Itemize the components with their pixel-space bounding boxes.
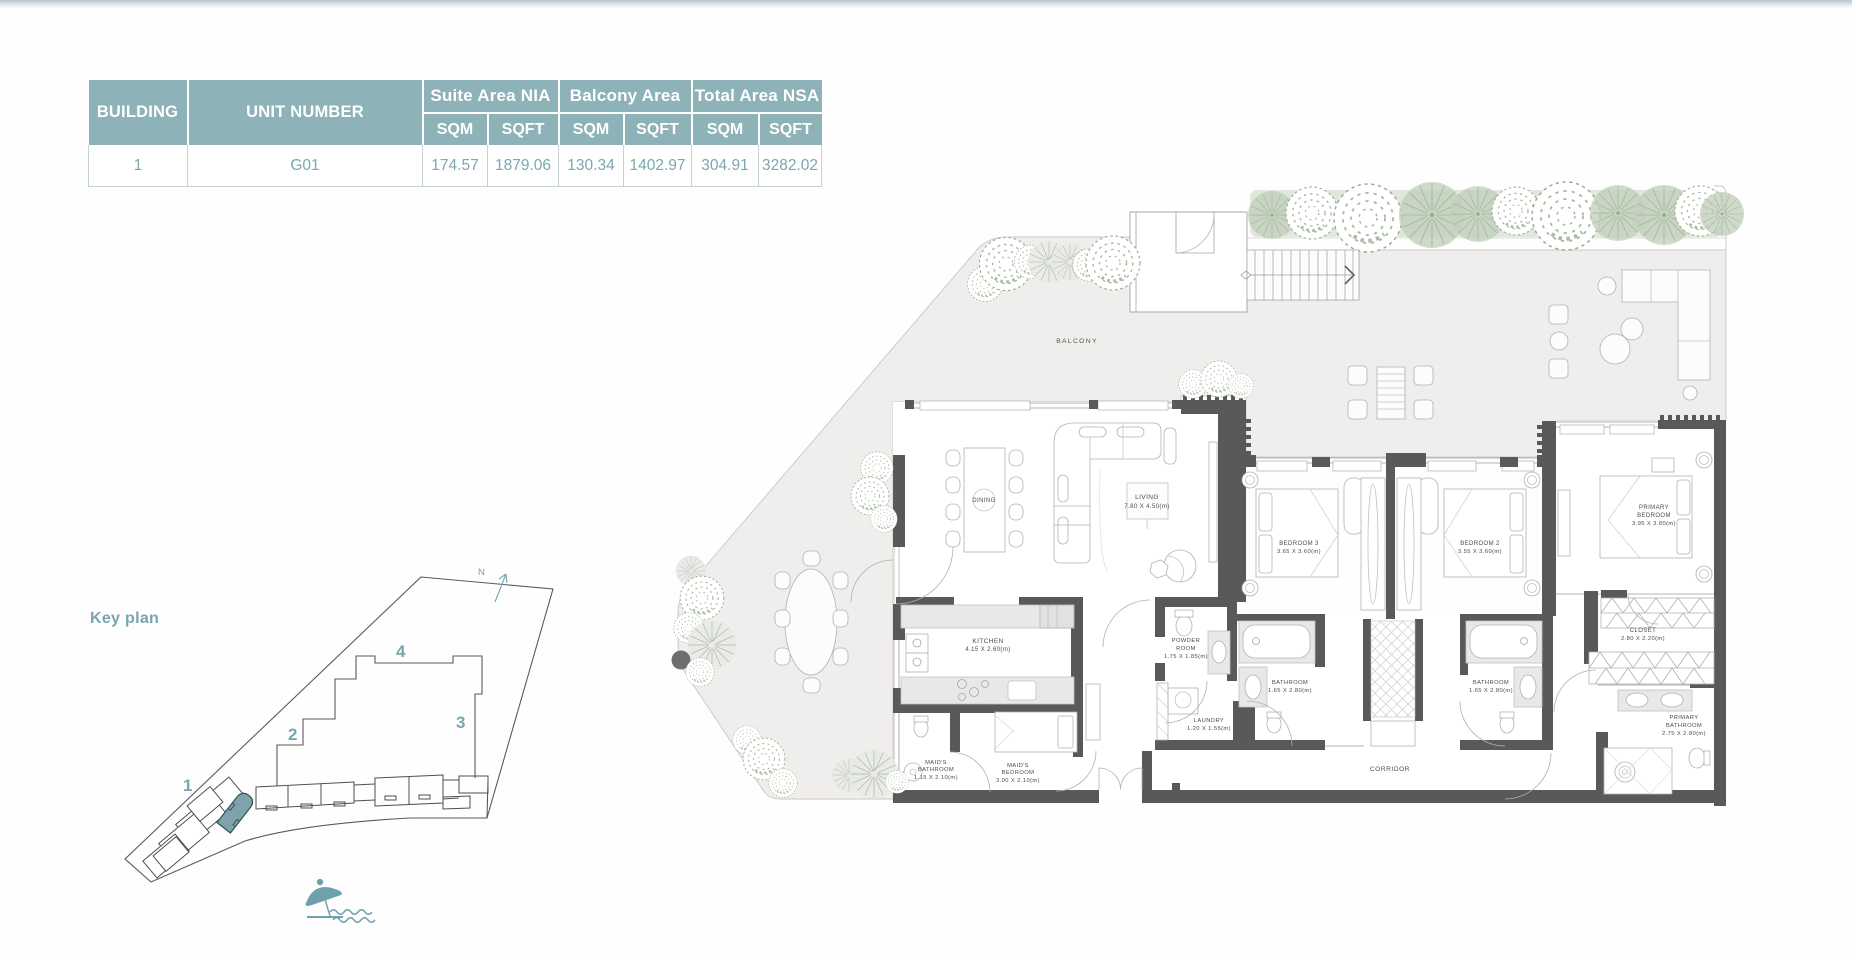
svg-text:LAUNDRY: LAUNDRY	[1194, 718, 1224, 724]
svg-text:3.95 X 3.80(m): 3.95 X 3.80(m)	[1632, 521, 1676, 527]
svg-text:3.55 X 3.60(m): 3.55 X 3.60(m)	[1458, 549, 1502, 555]
svg-text:BEDROOM 2: BEDROOM 2	[1460, 541, 1500, 547]
svg-text:BATHROOM: BATHROOM	[918, 767, 954, 773]
svg-text:N: N	[478, 567, 485, 578]
svg-text:Key plan: Key plan	[90, 610, 159, 627]
svg-text:CLOSET: CLOSET	[1630, 628, 1656, 634]
svg-text:1.75 X 1.85(m): 1.75 X 1.85(m)	[1164, 654, 1208, 660]
svg-text:BATHROOM: BATHROOM	[1473, 680, 1509, 686]
svg-text:DINING: DINING	[972, 498, 995, 504]
svg-text:4.15 X 2.60(m): 4.15 X 2.60(m)	[965, 647, 1010, 653]
svg-text:BEDROOM 3: BEDROOM 3	[1279, 541, 1319, 547]
svg-text:LIVING: LIVING	[1135, 494, 1159, 501]
svg-text:3: 3	[456, 713, 465, 732]
svg-text:2: 2	[288, 725, 297, 744]
svg-text:1.65 X 2.80(m): 1.65 X 2.80(m)	[1268, 688, 1312, 694]
svg-text:3.65 X 3.60(m): 3.65 X 3.60(m)	[1277, 549, 1321, 555]
svg-text:POWDER: POWDER	[1172, 638, 1201, 644]
svg-text:BEDROOM: BEDROOM	[1002, 770, 1035, 776]
svg-text:1.15 X 2.10(m): 1.15 X 2.10(m)	[914, 775, 958, 781]
svg-text:3.00 X 2.10(m): 3.00 X 2.10(m)	[996, 778, 1040, 784]
svg-text:7.80 X 4.50(m): 7.80 X 4.50(m)	[1124, 504, 1169, 510]
svg-text:BATHROOM: BATHROOM	[1666, 723, 1702, 729]
svg-text:CORRIDOR: CORRIDOR	[1370, 766, 1410, 773]
svg-text:KITCHEN: KITCHEN	[972, 638, 1003, 645]
svg-text:1.65 X 2.80(m): 1.65 X 2.80(m)	[1469, 688, 1513, 694]
svg-text:ROOM: ROOM	[1176, 646, 1196, 652]
svg-text:4: 4	[396, 642, 406, 661]
svg-text:1: 1	[183, 776, 192, 795]
svg-text:PRIMARY: PRIMARY	[1669, 715, 1698, 721]
svg-text:MAID'S: MAID'S	[1007, 763, 1029, 769]
svg-text:1.20 X 1.55(m): 1.20 X 1.55(m)	[1187, 726, 1231, 732]
svg-text:MAID'S: MAID'S	[925, 760, 947, 766]
svg-text:PRIMARY: PRIMARY	[1639, 505, 1669, 511]
svg-text:BATHROOM: BATHROOM	[1272, 680, 1308, 686]
svg-text:BEDROOM: BEDROOM	[1637, 513, 1671, 519]
svg-text:2.75 X 2.80(m): 2.75 X 2.80(m)	[1662, 731, 1706, 737]
svg-text:BALCONY: BALCONY	[1056, 338, 1098, 345]
svg-text:2.80 X 2.20(m): 2.80 X 2.20(m)	[1621, 636, 1665, 642]
